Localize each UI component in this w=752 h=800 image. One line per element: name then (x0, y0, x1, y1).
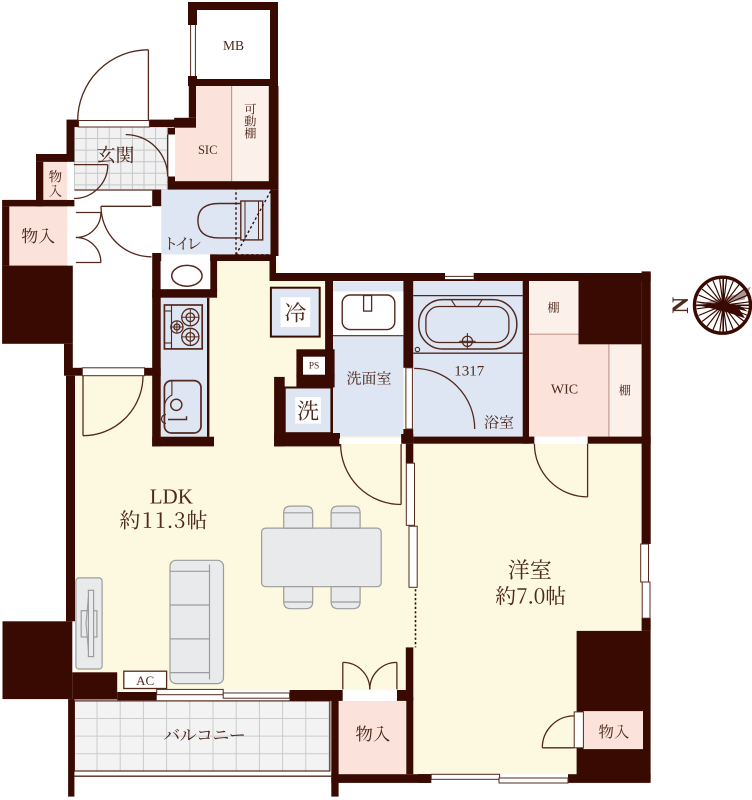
svg-text:1317: 1317 (454, 363, 485, 379)
svg-text:MB: MB (223, 38, 244, 53)
svg-text:SIC: SIC (198, 143, 217, 157)
svg-text:WIC: WIC (551, 383, 578, 398)
svg-text:PS: PS (309, 361, 320, 371)
svg-text:LDK: LDK (150, 485, 193, 509)
svg-text:N: N (668, 297, 693, 314)
svg-text:AC: AC (136, 673, 154, 688)
